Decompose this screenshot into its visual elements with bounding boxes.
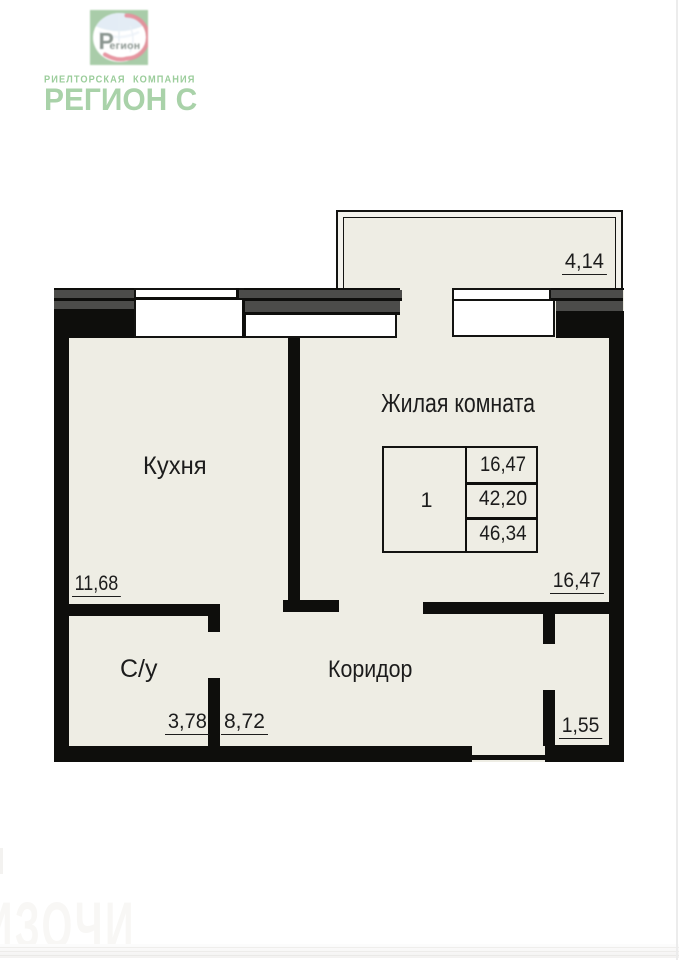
svg-text:егион: егион [110,40,141,52]
